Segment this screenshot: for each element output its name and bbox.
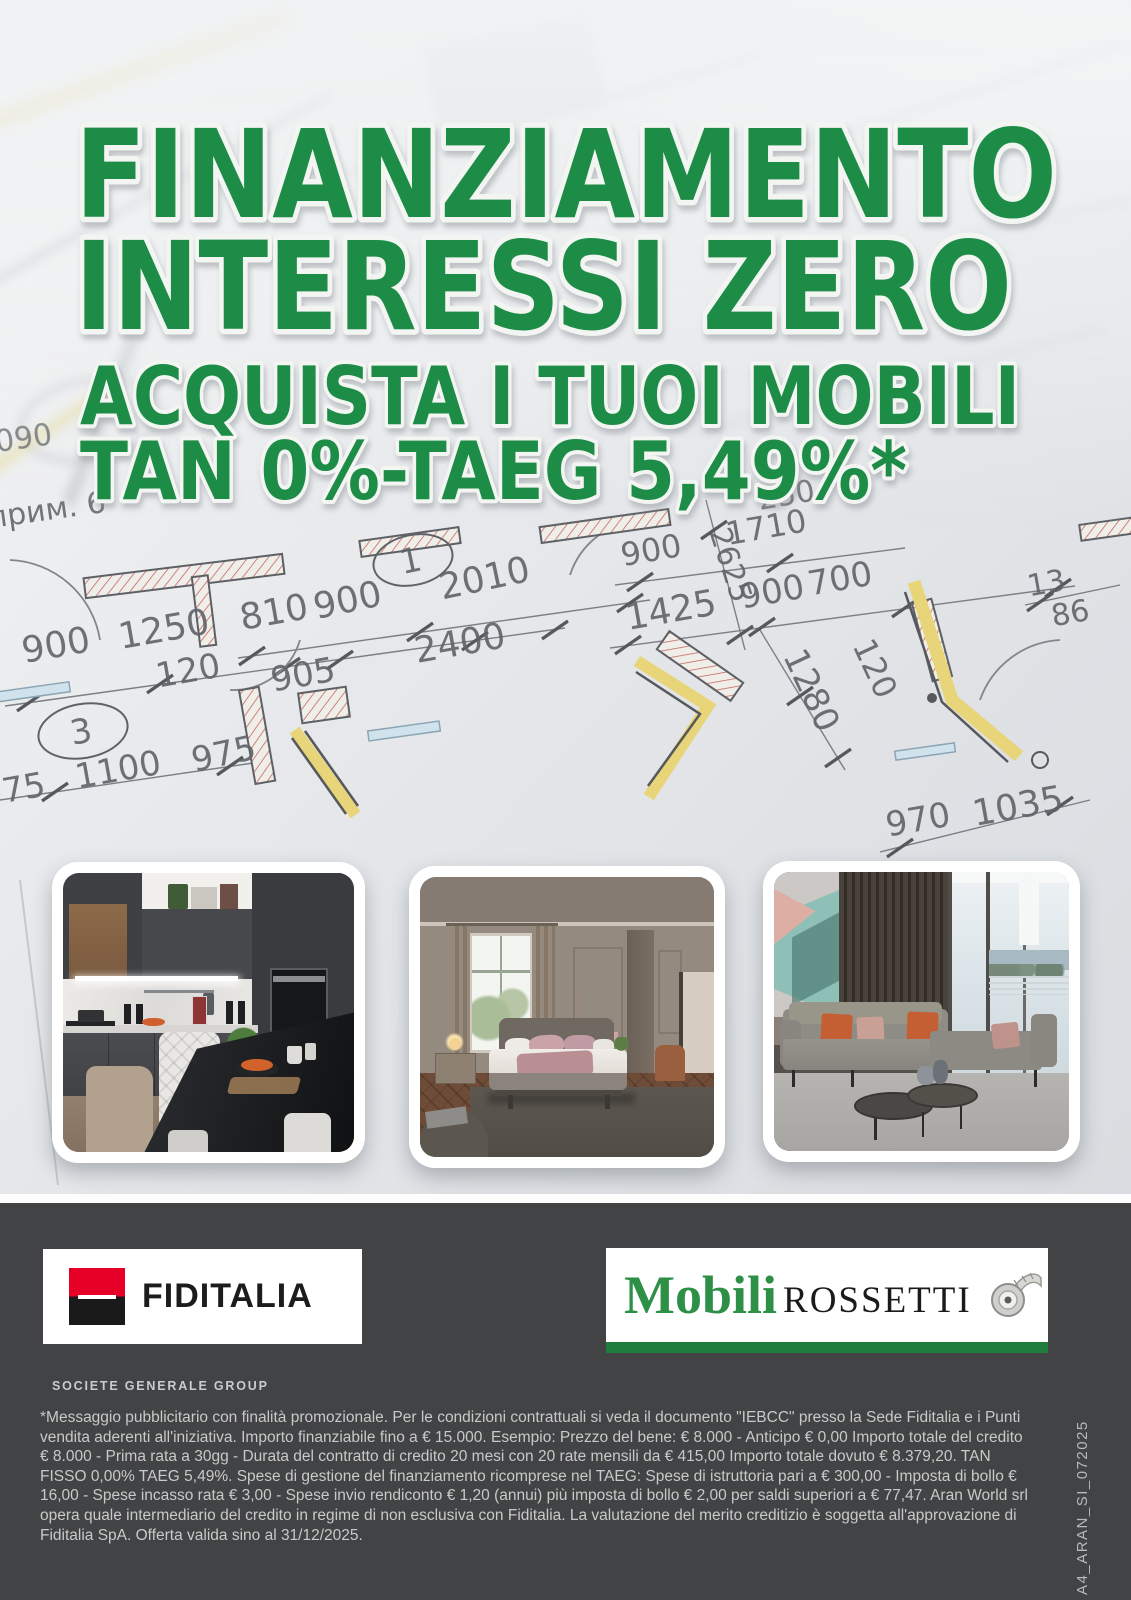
- fiditalia-wordmark: FIDITALIA: [142, 1277, 313, 1316]
- footer: FIDITALIA SOCIETE GENERALE GROUP Mobili …: [0, 1203, 1131, 1600]
- divider: [0, 1194, 1131, 1203]
- mobili-rossetti-logo: Mobili ROSSETTI: [606, 1248, 1048, 1353]
- bedroom-scene: [420, 877, 714, 1157]
- living-room-scene: [774, 872, 1069, 1151]
- bedroom-photo: [409, 866, 725, 1168]
- kitchen-scene: [63, 873, 354, 1152]
- rossetti-wordmark-mobili: Mobili: [624, 1264, 777, 1326]
- rossetti-wordmark-rossetti: ROSSETTI: [783, 1279, 972, 1322]
- legal-disclaimer: *Messaggio pubblicitario con finalità pr…: [40, 1408, 1028, 1545]
- living-room-photo: [763, 861, 1080, 1162]
- blueprint-label: 86: [1049, 593, 1093, 634]
- armchair: [655, 1045, 684, 1081]
- societe-generale-group-label: SOCIETE GENERALE GROUP: [52, 1379, 269, 1393]
- kitchen-photo: [52, 862, 365, 1163]
- coffee-table: [907, 1083, 978, 1108]
- tape-measure-icon: [984, 1264, 1042, 1320]
- print-reference-code: A4_ARAN_SI_072025: [1074, 1375, 1091, 1595]
- rossetti-green-bar: [606, 1342, 1048, 1353]
- societe-generale-icon: [69, 1268, 125, 1325]
- fiditalia-logo: FIDITALIA: [43, 1249, 362, 1344]
- beige-chair: [86, 1066, 153, 1152]
- nightstand: [435, 1053, 476, 1084]
